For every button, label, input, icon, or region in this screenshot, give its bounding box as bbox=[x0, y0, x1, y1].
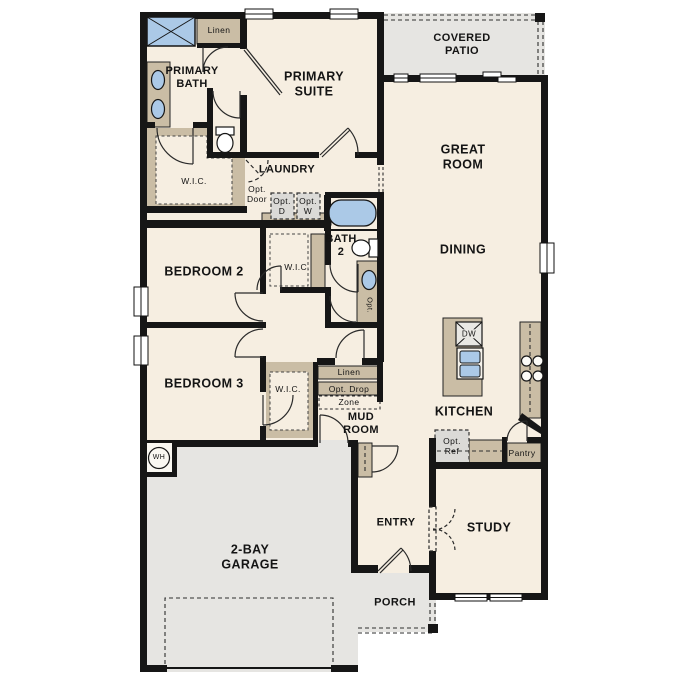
linen-closet-primary bbox=[197, 17, 241, 44]
wic1-wall-left bbox=[147, 128, 156, 213]
pantry-shelf bbox=[507, 443, 541, 463]
opt-dryer-box bbox=[271, 193, 294, 219]
patio-post bbox=[535, 13, 545, 22]
floor-fills bbox=[140, 12, 548, 672]
shower bbox=[147, 17, 195, 46]
window-suite-2 bbox=[330, 9, 358, 19]
drop-zone-counter bbox=[318, 382, 380, 395]
wic1-wall-top bbox=[156, 128, 207, 136]
bath2-sink bbox=[362, 271, 376, 290]
window-dining bbox=[540, 243, 554, 273]
covered-patio-floor bbox=[377, 13, 545, 77]
window-bedroom-3 bbox=[134, 336, 148, 365]
water-heater-circle bbox=[147, 443, 172, 472]
garage-door-line bbox=[165, 667, 333, 669]
wic3-interior bbox=[270, 372, 308, 430]
floor-plan-drawing bbox=[0, 0, 687, 687]
toilet-bath2 bbox=[352, 239, 378, 257]
window-great-room-2 bbox=[420, 74, 456, 82]
toilet-primary bbox=[216, 127, 234, 153]
porch-post bbox=[428, 624, 438, 633]
wic1-wall-right bbox=[232, 158, 245, 204]
kitchen-sink bbox=[457, 348, 483, 379]
dishwasher-box bbox=[456, 322, 482, 346]
mud-linen-shelf bbox=[318, 366, 380, 379]
opt-washer-box bbox=[297, 193, 320, 219]
floor-plan: LinenPRIMARY BATHPRIMARY SUITECOVERED PA… bbox=[0, 0, 687, 687]
porch-floor bbox=[358, 573, 436, 632]
wic2-shelf bbox=[311, 234, 325, 288]
study-floor bbox=[429, 462, 548, 600]
opt-ref-box bbox=[435, 430, 469, 463]
window-bedroom-2 bbox=[134, 287, 148, 316]
window-suite-1 bbox=[245, 9, 273, 19]
window-study-2 bbox=[490, 594, 522, 601]
window-study-1 bbox=[455, 594, 487, 601]
window-great-room-1 bbox=[394, 74, 408, 82]
